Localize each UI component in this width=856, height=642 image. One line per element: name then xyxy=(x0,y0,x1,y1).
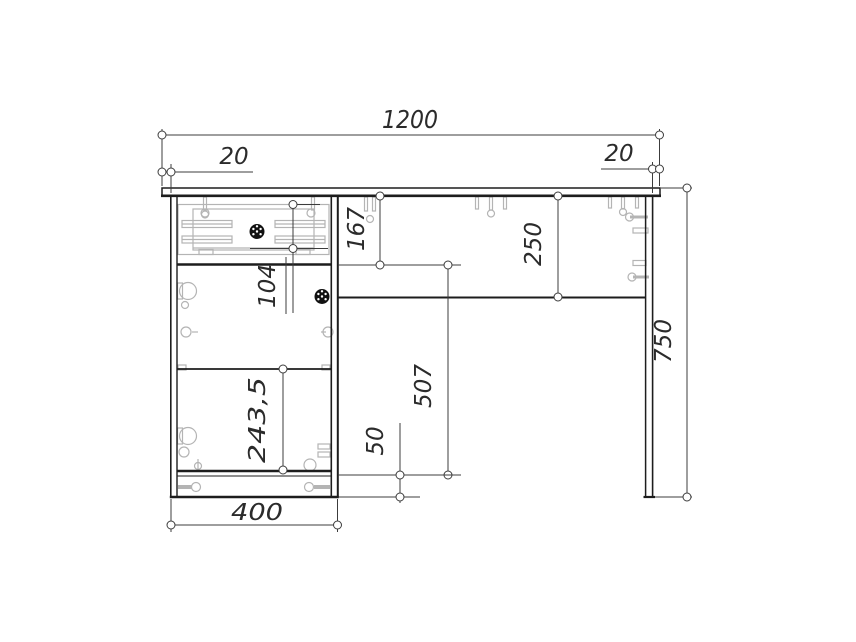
desk-top xyxy=(161,188,661,196)
hinge-top xyxy=(178,283,197,309)
dim-apron-height-label: 250 xyxy=(521,222,547,266)
dim-shelf-spacing-label: 243,5 xyxy=(245,377,271,463)
dim-cabinet-width-label: 400 xyxy=(231,500,283,526)
dim-drawer-front-label: 104 xyxy=(255,264,281,308)
under-top-screws xyxy=(202,197,639,223)
plinth-screws xyxy=(178,483,330,492)
hinge-bottom xyxy=(178,428,202,471)
dim-overall-height-label: 750 xyxy=(651,319,677,363)
dim-shelf-spacing xyxy=(279,365,287,474)
dim-plinth-height xyxy=(338,423,461,503)
desk-structure xyxy=(161,188,661,497)
technical-drawing-canvas: 1200 20 20 167 250 104 507 243,5 50 400 … xyxy=(0,0,856,642)
dim-overall-width-label: 1200 xyxy=(382,105,438,134)
dim-apron-height xyxy=(554,192,562,301)
drawer-knob xyxy=(250,224,265,239)
dim-drawer-section-label: 167 xyxy=(344,207,370,251)
dim-overhang-left-label: 20 xyxy=(219,144,248,170)
shelf-pins xyxy=(178,327,333,370)
door-cam-fittings xyxy=(304,444,330,471)
dim-door-opening-label: 507 xyxy=(411,364,437,408)
dim-door-opening xyxy=(444,261,452,479)
door-knob xyxy=(315,289,330,304)
dim-overhang-right-label: 20 xyxy=(604,141,633,167)
dim-plinth-height-label: 50 xyxy=(363,426,389,455)
desk-drawing: 1200 20 20 167 250 104 507 243,5 50 400 … xyxy=(0,0,856,642)
